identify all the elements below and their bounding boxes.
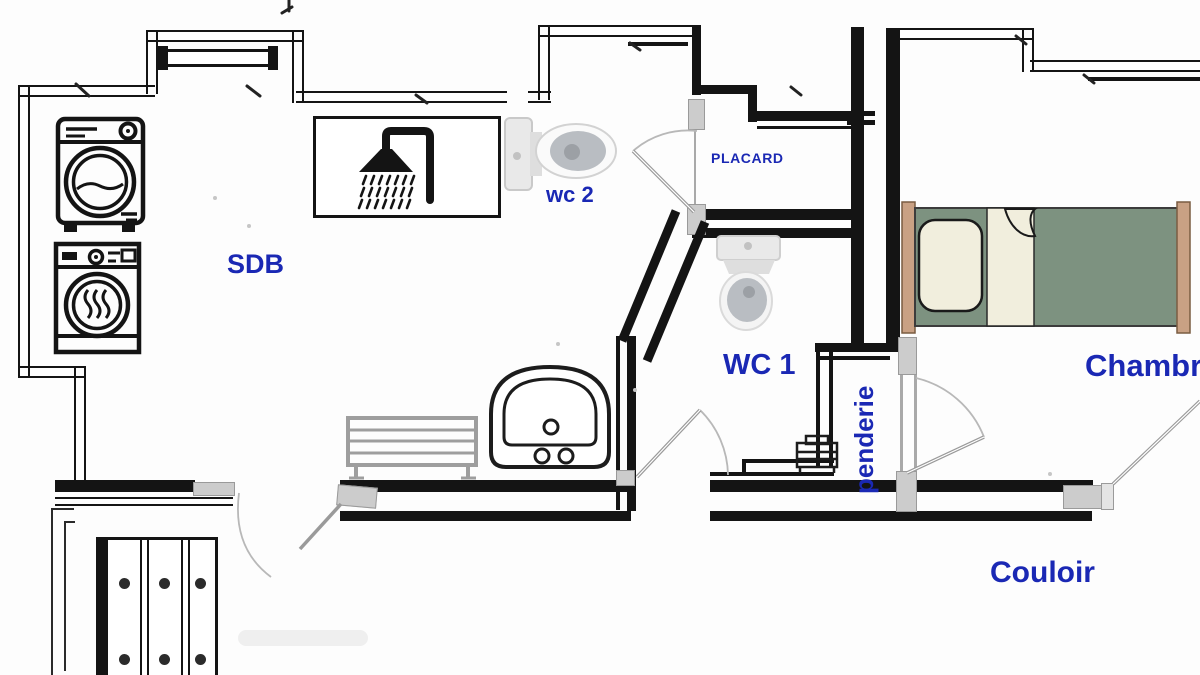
wardrobe-knob	[195, 654, 206, 665]
door-jamb	[898, 337, 917, 375]
doorway-reveal	[914, 373, 917, 473]
washing-machine-icon	[58, 119, 143, 232]
door-jamb	[687, 204, 706, 235]
wall-line	[742, 459, 834, 463]
room-label-placard: PLACARD	[711, 150, 784, 166]
doorway-reveal	[900, 373, 903, 473]
doorway-reveal	[694, 130, 696, 205]
room-label-chambre: Chambre	[1085, 348, 1200, 384]
wardrobe-side	[99, 540, 108, 675]
door-leaf-closed	[1063, 485, 1103, 509]
wardrobe-knob	[159, 654, 170, 665]
single-bed-icon	[902, 202, 1190, 333]
scan-speck	[633, 388, 637, 392]
wardrobe-divider	[181, 540, 190, 675]
wall	[688, 209, 858, 220]
room-label-couloir: Couloir	[990, 556, 1095, 590]
window-cap	[268, 46, 278, 70]
wall-line	[64, 521, 75, 671]
wall-line	[757, 126, 857, 129]
scan-speck	[247, 224, 251, 228]
wall-line	[742, 459, 746, 476]
wall	[886, 28, 900, 347]
door-jamb	[616, 470, 635, 486]
door-leaf-closed	[336, 484, 378, 508]
scan-speck	[213, 196, 217, 200]
wardrobe-knob	[119, 578, 130, 589]
wall	[752, 111, 858, 121]
scan-smudge	[238, 630, 368, 646]
wall	[146, 30, 158, 94]
scan-speck	[556, 342, 560, 346]
scan-speck	[1048, 472, 1052, 476]
room-label-wc1: WC 1	[723, 349, 796, 382]
wardrobe-knob	[195, 578, 206, 589]
wall-corridor	[710, 511, 1092, 521]
window-cap	[158, 46, 168, 70]
floor-plan-canvas: SDB wc 2 PLACARD WC 1 penderie Chambre C…	[0, 0, 1200, 675]
wall-corridor	[55, 480, 195, 492]
wall	[18, 85, 155, 97]
wall-line	[829, 349, 833, 468]
wall-tick	[847, 111, 875, 116]
door-jamb	[1101, 483, 1114, 510]
wall-line	[816, 349, 820, 468]
wardrobe-icon	[96, 537, 218, 675]
wall-corridor	[340, 480, 633, 492]
wall	[1030, 60, 1200, 72]
room-label-sdb: SDB	[227, 249, 284, 280]
towel-radiator-icon	[348, 418, 476, 479]
wall-tick	[847, 120, 875, 125]
dryer-icon	[56, 244, 139, 352]
wall-line	[1088, 77, 1200, 81]
wall-corridor	[340, 511, 631, 521]
door-jamb	[896, 471, 917, 512]
toilet-wc1-icon	[717, 236, 780, 330]
wall	[886, 28, 1034, 40]
toilet-wc2-icon	[505, 118, 616, 190]
window	[162, 49, 274, 67]
wall	[146, 30, 304, 42]
room-label-penderie: penderie	[849, 352, 880, 494]
wall	[538, 25, 550, 100]
wall	[292, 30, 304, 103]
wall	[74, 366, 86, 492]
wardrobe-knob	[159, 578, 170, 589]
wall	[1022, 30, 1034, 72]
door-jamb	[193, 482, 235, 496]
wall	[296, 91, 507, 103]
wall	[692, 228, 858, 238]
wardrobe-divider	[140, 540, 149, 675]
wall	[851, 27, 864, 346]
door-jamb	[688, 99, 705, 130]
washbasin-icon	[491, 367, 609, 467]
wall	[815, 343, 899, 352]
wardrobe-knob	[119, 654, 130, 665]
wall-line	[710, 472, 834, 476]
wall	[538, 25, 698, 37]
shower-stall	[313, 116, 501, 218]
wall	[18, 85, 30, 378]
wall	[55, 497, 233, 506]
wall-line	[628, 42, 688, 46]
room-label-wc2: wc 2	[546, 182, 594, 208]
